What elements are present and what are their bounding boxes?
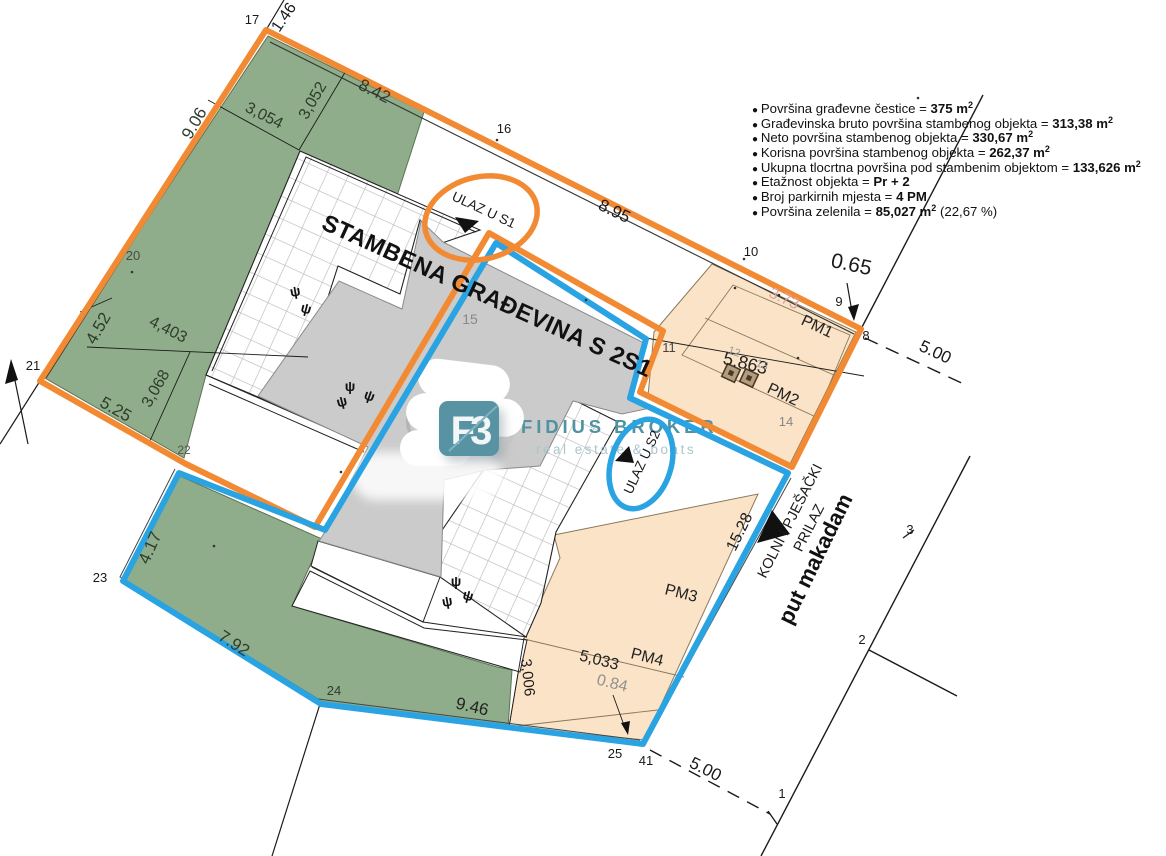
svg-text:23: 23 (93, 570, 107, 585)
svg-text:ψ: ψ (345, 378, 356, 394)
svg-text:● Ukupna tlocrtna površina pod: ● Ukupna tlocrtna površina pod stambenim… (752, 159, 1141, 175)
svg-text:21: 21 (26, 358, 40, 373)
svg-text:15: 15 (462, 311, 478, 327)
svg-text:● Broj parkirnih mjesta = 4 P: ● Broj parkirnih mjesta = 4 PM (752, 189, 927, 204)
svg-text:24: 24 (327, 683, 341, 698)
svg-text:● Etažnost objekta = Pr + 2: ● Etažnost objekta = Pr + 2 (752, 174, 910, 189)
svg-text:41: 41 (639, 753, 653, 768)
svg-text:2: 2 (858, 632, 865, 647)
svg-text:20: 20 (126, 248, 140, 263)
svg-text:25: 25 (608, 746, 622, 761)
svg-text:17: 17 (245, 12, 259, 27)
svg-text:● Korisna površina stambenog o: ● Korisna površina stambenog objekta = 2… (752, 144, 1050, 160)
svg-text:9: 9 (835, 294, 842, 309)
svg-text:● Površina zelenila = 85,027 m: ● Površina zelenila = 85,027 m2 (22,67 %… (752, 203, 997, 219)
svg-text:22: 22 (177, 443, 191, 457)
svg-text:8: 8 (862, 328, 869, 343)
svg-text:11: 11 (662, 340, 676, 355)
svg-text:● Neto površina stambenog obje: ● Neto površina stambenog objekta = 330,… (752, 129, 1033, 145)
svg-text:14: 14 (779, 414, 793, 429)
svg-text:3: 3 (906, 522, 913, 537)
svg-text:ψ: ψ (451, 573, 462, 589)
svg-text:● Građevinska bruto površina s: ● Građevinska bruto površina stambenog o… (752, 115, 1113, 131)
svg-text:16: 16 (497, 121, 511, 136)
svg-text:● Površina građevne čestice =: ● Površina građevne čestice = 375 m2 (752, 100, 973, 116)
svg-text:10: 10 (744, 244, 758, 259)
svg-text:1: 1 (778, 786, 785, 801)
